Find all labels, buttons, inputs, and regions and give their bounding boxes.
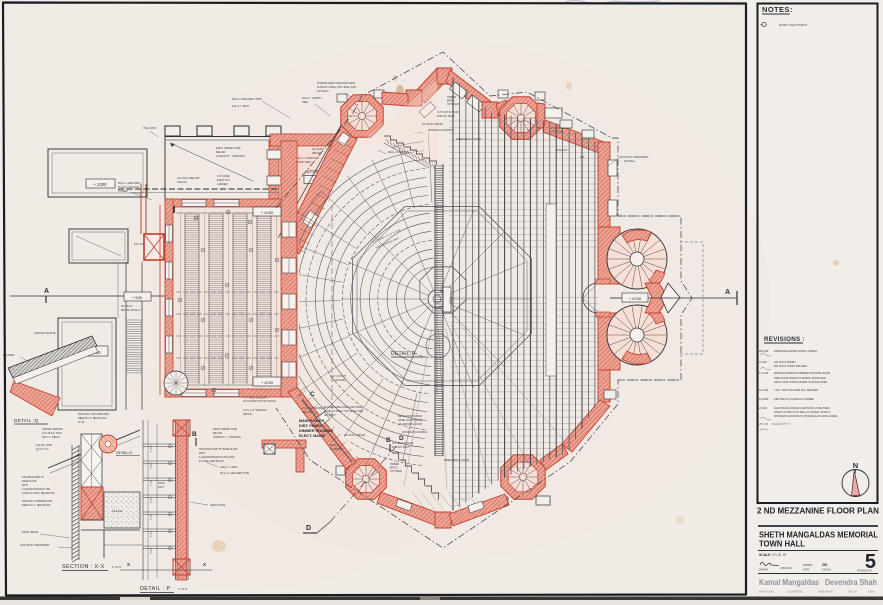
svg-text:ACOUSTIC TREATMENT: ACOUSTIC TREATMENT	[20, 543, 50, 547]
svg-text:SCALE: SCALE	[759, 553, 771, 557]
svg-text:T.R.P. LIGHTING RING DIA. REVI: T.R.P. LIGHTING RING DIA. REVISED.	[774, 388, 819, 392]
svg-text:CHAJJA: CHAJJA	[177, 180, 187, 184]
svg-text:UP STAND: UP STAND	[447, 103, 459, 106]
svg-text:50 φ G.I. DELIVERY PIPE: 50 φ G.I. DELIVERY PIPE	[220, 472, 250, 475]
svg-text:10φ G.I. VENT: 10φ G.I. VENT	[232, 104, 250, 108]
svg-text:TOWER: TOWER	[118, 189, 128, 193]
svg-text:25 1 99: 25 1 99	[759, 422, 768, 426]
svg-text:A/C CUT: A/C CUT	[134, 242, 145, 246]
svg-text:DRAWN: DRAWN	[759, 569, 768, 572]
svg-text:CLADDING: CLADDING	[330, 448, 343, 451]
svg-text:LONG IN CONC. BED BLOCK: LONG IN CONC. BED BLOCK	[22, 492, 55, 495]
svg-text:10φ M.S. PIPE: 10φ M.S. PIPE	[36, 444, 52, 447]
svg-text:1"=2.5′: 1"=2.5′	[112, 565, 122, 569]
svg-text:A/C DUCT ABOVE: A/C DUCT ABOVE	[344, 434, 365, 437]
svg-text:2-9-93: 2-9-93	[759, 406, 767, 410]
svg-text:A/C DUCT: A/C DUCT	[312, 148, 324, 151]
svg-text:+ 2200: + 2200	[94, 182, 108, 187]
svg-text:EXIST WATER TANK: EXIST WATER TANK	[216, 146, 241, 150]
svg-text:3'-3¾": 3'-3¾"	[150, 445, 153, 452]
svg-text:3'-3¾": 3'-3¾"	[150, 479, 153, 486]
svg-text:BELOW: BELOW	[213, 432, 223, 435]
svg-text:AHMEDABAD: AHMEDABAD	[818, 591, 833, 594]
svg-text:FIRE BOX: FIRE BOX	[556, 149, 568, 152]
svg-text:2'-6"x 2'-6" WINDOW: 2'-6"x 2'-6" WINDOW	[302, 407, 326, 410]
svg-text:50φ G.I. DELIVERY PIPE: 50φ G.I. DELIVERY PIPE	[232, 97, 262, 101]
svg-text:SLAB AT LINTEL TOP LEVEL FOR: SLAB AT LINTEL TOP LEVEL FOR	[317, 86, 356, 89]
svg-text:LADDER: LADDER	[217, 182, 228, 186]
svg-text:A/C DUCT: A/C DUCT	[317, 90, 329, 93]
svg-text:150X150X12MM TH.: 150X150X12MM TH.	[22, 476, 45, 479]
svg-text:CINDUR GRANITE: CINDUR GRANITE	[34, 332, 56, 335]
svg-text:IN CONC. BED BLOCK: IN CONC. BED BLOCK	[199, 460, 225, 463]
svg-text:SHETH MANGALDAS MEMORIAL: SHETH MANGALDAS MEMORIAL	[759, 531, 878, 540]
svg-text:3'-6"x 2'-6" WINDOW: 3'-6"x 2'-6" WINDOW	[243, 409, 267, 412]
svg-text:JOB NO.: JOB NO.	[822, 569, 832, 572]
svg-text:22-2-93: 22-2-93	[759, 349, 769, 353]
svg-text:N: N	[853, 461, 858, 470]
svg-text:DEEP R.C.C. BED BLOCK: DEEP R.C.C. BED BLOCK	[78, 417, 107, 420]
svg-text:TO A/C COOLING: TO A/C COOLING	[118, 185, 139, 189]
svg-text:DEEP R.C.C. BED BLOCK: DEEP R.C.C. BED BLOCK	[22, 504, 51, 507]
svg-text:380 006: 380 006	[848, 591, 857, 594]
svg-text:DETAIL :Q: DETAIL :Q	[14, 418, 39, 423]
svg-text:3'-3¾": 3'-3¾"	[150, 530, 153, 537]
svg-text:2'-6" WIDE: 2'-6" WIDE	[217, 174, 230, 178]
svg-text:IN FLOOR): IN FLOOR)	[333, 379, 345, 382]
svg-text:TOWN HALL: TOWN HALL	[759, 540, 805, 549]
svg-text:REVISIONS :: REVISIONS :	[764, 336, 805, 343]
svg-text:WOODEN FLOORING: WOODEN FLOORING	[402, 431, 427, 434]
svg-text:3'-3¾": 3'-3¾"	[150, 462, 153, 469]
svg-text:B: B	[386, 437, 391, 444]
svg-text:3'-3¾": 3'-3¾"	[150, 513, 153, 520]
svg-text:75φ R.W.P.: 75φ R.W.P.	[143, 126, 157, 130]
svg-text:A: A	[725, 289, 730, 296]
svg-text:100φ C.I. VENT: 100φ C.I. VENT	[220, 466, 238, 469]
svg-text:CUT OUT IN SLAB: CUT OUT IN SLAB	[437, 111, 459, 114]
svg-text:HOLD: HOLD	[158, 482, 165, 485]
svg-text:C: C	[310, 391, 315, 398]
svg-text:ELLISBRIDGE: ELLISBRIDGE	[787, 591, 803, 594]
svg-text:3'-3¾": 3'-3¾"	[150, 496, 153, 503]
svg-text:DETAIL:G: DETAIL:G	[116, 451, 132, 455]
svg-text:12-8-93: 12-8-93	[759, 397, 769, 401]
svg-text:+ 4030: + 4030	[261, 380, 274, 385]
svg-text:17-4-93: 17-4-93	[759, 371, 769, 375]
svg-text:BALCONY STEPS REVISED.: BALCONY STEPS REVISED.	[774, 364, 808, 368]
svg-text:X: X	[127, 562, 130, 567]
svg-text:DATE: DATE	[803, 569, 810, 572]
svg-text:CINDUR GRANITE: CINDUR GRANITE	[42, 428, 63, 431]
svg-text:PLASTER: PLASTER	[3, 354, 15, 357]
svg-text:Kamal Mangaldas: Kamal Mangaldas	[759, 578, 819, 587]
svg-text:CELL 3'-6": CELL 3'-6"	[302, 411, 314, 414]
svg-text:NOTES:: NOTES:	[762, 5, 793, 14]
svg-text:FOR A/C DUCT: FOR A/C DUCT	[392, 446, 410, 449]
svg-text:4-10φANCHOR BOLT 250 LONG: 4-10φANCHOR BOLT 250 LONG	[199, 456, 235, 459]
svg-text:MAIN POWER: MAIN POWER	[299, 419, 324, 423]
svg-text:SECTION : X-X: SECTION : X-X	[62, 564, 105, 570]
svg-text:WALL: WALL	[330, 444, 337, 447]
svg-text:Devendra Shah: Devendra Shah	[825, 578, 877, 587]
svg-text:A: A	[44, 288, 49, 295]
svg-text:CHECKED: CHECKED	[780, 567, 792, 570]
svg-text:ELECTRICAL ROOM & SECTION:X-X: ELECTRICAL ROOM & SECTION:X-X REVISED	[774, 406, 830, 410]
svg-text:A/C DUCT ABOVE: A/C DUCT ABOVE	[422, 123, 443, 126]
svg-text:EXIST. WATER TANK: EXIST. WATER TANK	[213, 428, 238, 431]
svg-text:@ 4'-0" C/C: @ 4'-0" C/C	[36, 448, 49, 451]
svg-text:4-10φANCHOR BOLT 250: 4-10φANCHOR BOLT 250	[22, 488, 51, 491]
svg-text:UP & FROM TOP OF STAGE: UP & FROM TOP OF STAGE	[243, 400, 276, 403]
svg-text:EMERGENCY DOOR: EMERGENCY DOOR	[456, 137, 481, 141]
svg-text:50φ G.I. DELIVERY: 50φ G.I. DELIVERY	[118, 181, 141, 185]
svg-text:+ 6760: + 6760	[629, 296, 642, 301]
svg-text:1″= 8′- 0″: 1″= 8′- 0″	[772, 553, 787, 557]
svg-text:FOR A/C DUCT: FOR A/C DUCT	[437, 115, 455, 118]
svg-text:DETAIL:P-: DETAIL:P-	[391, 351, 417, 357]
svg-text:(CAPACITY : 7300LTRS): (CAPACITY : 7300LTRS)	[213, 436, 241, 439]
svg-text:A/C DUCT: A/C DUCT	[324, 414, 336, 417]
svg-text:WITH: WITH	[22, 484, 28, 487]
svg-text:WALL CLADDING: WALL CLADDING	[388, 150, 409, 154]
svg-text:WATER TANK: WATER TANK	[295, 161, 311, 164]
svg-text:B: B	[192, 431, 197, 438]
svg-text:18/6/97: 18/6/97	[803, 563, 813, 567]
svg-text:WOODEN FLOORING IN TRIANGULAR: WOODEN FLOORING IN TRIANGULAR GAPS ADDED…	[774, 414, 838, 418]
svg-text:D: D	[306, 525, 311, 532]
svg-text:DETAIL : P: DETAIL : P	[140, 586, 170, 592]
svg-text:A/C DUCT BELOW: A/C DUCT BELOW	[177, 176, 200, 180]
svg-text:(CAPACITY : 7200LTRS): (CAPACITY : 7200LTRS)	[216, 154, 245, 158]
svg-text:BASE PLATE: BASE PLATE	[22, 480, 37, 483]
svg-text:DIST. PANEL,: DIST. PANEL,	[299, 424, 323, 428]
svg-text:X: X	[203, 562, 206, 567]
svg-text:300LONG X 150 WIDE X300: 300LONG X 150 WIDE X300	[78, 413, 109, 416]
svg-text:2 ND MEZZANINE FLOOR PLAN: 2 ND MEZZANINE FLOOR PLAN	[757, 506, 879, 516]
svg-text:D: D	[399, 435, 404, 442]
svg-text:EMERGENCY DOOR: EMERGENCY DOOR	[444, 458, 469, 462]
svg-text:PIPE: PIPE	[302, 100, 308, 104]
svg-text:ELECT. MAINS: ELECT. MAINS	[299, 434, 326, 438]
svg-text:ABOVE: ABOVE	[243, 413, 252, 416]
svg-text:INDIA: INDIA	[868, 591, 875, 594]
svg-text:DIMMER HOUSING: DIMMER HOUSING	[299, 429, 333, 433]
svg-text:+ 500: + 500	[132, 295, 143, 300]
svg-text:3'-3¾": 3'-3¾"	[150, 547, 153, 554]
svg-text:+ 4030: + 4030	[261, 210, 274, 215]
svg-text:6-10 25 R.S. K875: 6-10 25 R.S. K875	[42, 432, 62, 435]
svg-text:ON WALL: ON WALL	[624, 160, 636, 163]
svg-text:NEW DOOR ADDED IN SPIRAL STAIR: NEW DOOR ADDED IN SPIRAL STAIRCASE	[774, 376, 826, 380]
svg-text:AT GROUND FLOOR: AT GROUND FLOOR	[398, 423, 422, 426]
svg-text:BELOW: BELOW	[216, 150, 226, 154]
svg-text:(1'x1' CUTOUT: (1'x1' CUTOUT	[330, 375, 347, 378]
svg-text:Drawing Rec'd: Drawing Rec'd	[772, 421, 791, 426]
svg-text:(TYP): (TYP)	[78, 421, 84, 424]
svg-text:A/C DUCT: A/C DUCT	[121, 305, 133, 308]
svg-text:BELOW CHALLA: BELOW CHALLA	[121, 309, 141, 312]
svg-text:EXIST LIGHT POINT ADDED IN STA: EXIST LIGHT POINT ADDED IN STAGE AREA	[774, 380, 828, 384]
svg-text:4-4-93: 4-4-93	[759, 360, 767, 364]
svg-text:SHADED AREA INDICATES NEW: SHADED AREA INDICATES NEW	[317, 82, 356, 85]
svg-text:EXIST LIGHT POINT: EXIST LIGHT POINT	[779, 23, 807, 27]
svg-text:A/C DUCT ADDED.: A/C DUCT ADDED.	[774, 360, 796, 364]
svg-text:DRAWING NO.: DRAWING NO.	[857, 570, 873, 573]
svg-text:STEPS IN WIDTH OF WALL AT SPIR: STEPS IN WIDTH OF WALL AT SPIRAL STAIR &	[774, 410, 830, 414]
svg-text:UP STAND: UP STAND	[390, 470, 402, 473]
svg-text:CUT OUT IN SLAB: CUT OUT IN SLAB	[392, 442, 414, 445]
svg-text:SECTION:X-X & DETAIL:P ADDED: SECTION:X-X & DETAIL:P ADDED	[774, 397, 814, 401]
svg-text:FIRE LINE: FIRE LINE	[551, 131, 563, 134]
svg-text:300LONG X 150WIDE X300: 300LONG X 150WIDE X300	[22, 500, 53, 503]
svg-text:WITH: WITH	[199, 452, 205, 455]
svg-text:300 C.C. RINGS: 300 C.C. RINGS	[42, 436, 60, 439]
svg-text:MANGALBAG: MANGALBAG	[759, 591, 774, 594]
svg-text:PL5X150X12 MM TH. BASE PLATE: PL5X150X12 MM TH. BASE PLATE	[199, 448, 238, 451]
svg-text:30φ G.I. SUPPLY: 30φ G.I. SUPPLY	[302, 96, 323, 100]
svg-text:ACOUSTIC TREATMENT: ACOUSTIC TREATMENT	[620, 156, 649, 159]
svg-text:NEW DOOR AS PER: NEW DOOR AS PER	[398, 415, 422, 418]
svg-text:FILLING: FILLING	[112, 509, 123, 513]
svg-text:354: 354	[822, 563, 828, 567]
svg-text:DRAINAGE,WATER SUPPLY ADDED: DRAINAGE,WATER SUPPLY ADDED	[774, 349, 817, 353]
svg-text:WINDOW ADDED IN DIMMER HOUSING: WINDOW ADDED IN DIMMER HOUSING ROOM	[774, 371, 830, 375]
svg-text:FAST: FAST	[158, 486, 165, 489]
svg-text:SLAB AT LINTEL TOP LEVEL FOR: SLAB AT LINTEL TOP LEVEL FOR	[324, 410, 363, 413]
svg-text:SAME LOCATION AS: SAME LOCATION AS	[398, 419, 423, 422]
svg-text:WOODEN FLOORING: WOODEN FLOORING	[428, 129, 453, 132]
svg-text:+ 4030: + 4030	[449, 294, 453, 305]
svg-text:EXIST. BEAM: EXIST. BEAM	[22, 530, 38, 534]
svg-text:30φM.S.PIPE: 30φM.S.PIPE	[210, 504, 226, 507]
svg-text:1"=2.5′: 1"=2.5′	[178, 587, 188, 591]
svg-text:10-5-93: 10-5-93	[759, 388, 769, 392]
svg-text:EXIST M.S.: EXIST M.S.	[217, 178, 231, 182]
svg-text:SHADED AREA INDICATES NEW: SHADED AREA INDICATES NEW	[324, 406, 363, 409]
